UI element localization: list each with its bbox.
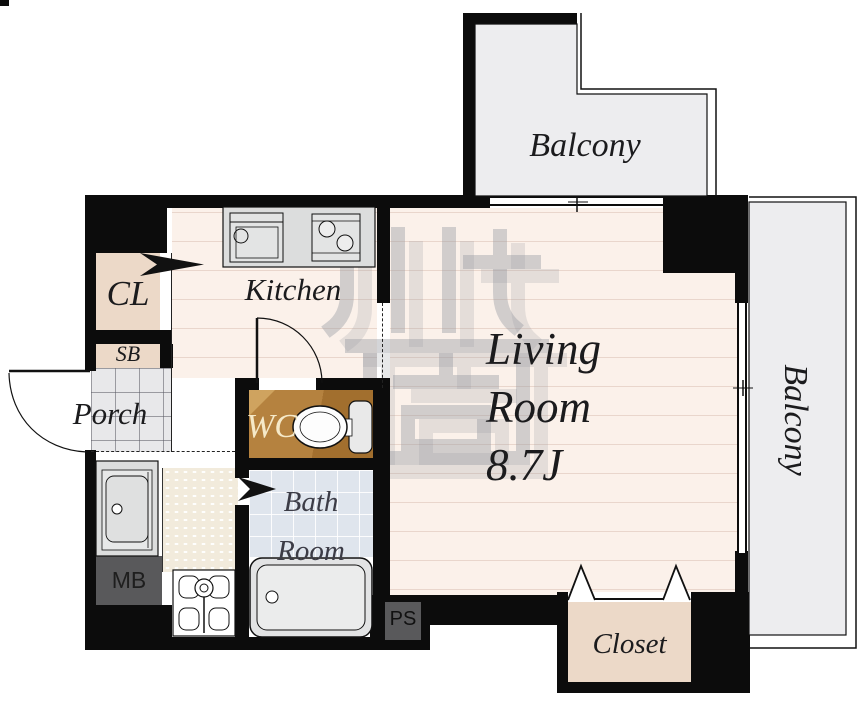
balcony-top-outline bbox=[475, 13, 716, 196]
kitchen-counter-icon bbox=[223, 207, 375, 267]
living-room-line1: Living bbox=[486, 320, 601, 378]
cl-folding-door-icon bbox=[140, 253, 204, 276]
cl-label: CL bbox=[97, 274, 159, 314]
toilet-icon bbox=[293, 401, 372, 453]
balcony-top-label: Balcony bbox=[500, 127, 670, 165]
window-tick-top bbox=[568, 196, 588, 212]
ps-label: PS bbox=[385, 608, 421, 631]
kitchen-label: Kitchen bbox=[203, 272, 383, 308]
wc-door-icon bbox=[257, 318, 322, 383]
mb-label: MB bbox=[96, 567, 162, 594]
bath-room-label: Bath Room bbox=[250, 478, 372, 576]
living-room-size: 8.7J bbox=[486, 436, 601, 494]
closet-label: Closet bbox=[568, 628, 691, 661]
balcony-right-label: Balcony bbox=[780, 340, 814, 500]
washer-pan-icon bbox=[173, 570, 235, 636]
living-room-label: Living Room 8.7J bbox=[486, 320, 601, 494]
closet-door-icon bbox=[568, 566, 690, 600]
porch-label: Porch bbox=[60, 396, 160, 432]
bath-label-line2: Room bbox=[250, 527, 372, 576]
bath-label-line1: Bath bbox=[250, 478, 372, 527]
floor-plan: Balcony Balcony Living Room 8.7J Kitchen… bbox=[0, 0, 866, 710]
sb-label: SB bbox=[97, 341, 159, 367]
vanity-sink-icon bbox=[96, 461, 158, 556]
living-room-line2: Room bbox=[486, 378, 601, 436]
wc-label: WC bbox=[246, 408, 297, 446]
